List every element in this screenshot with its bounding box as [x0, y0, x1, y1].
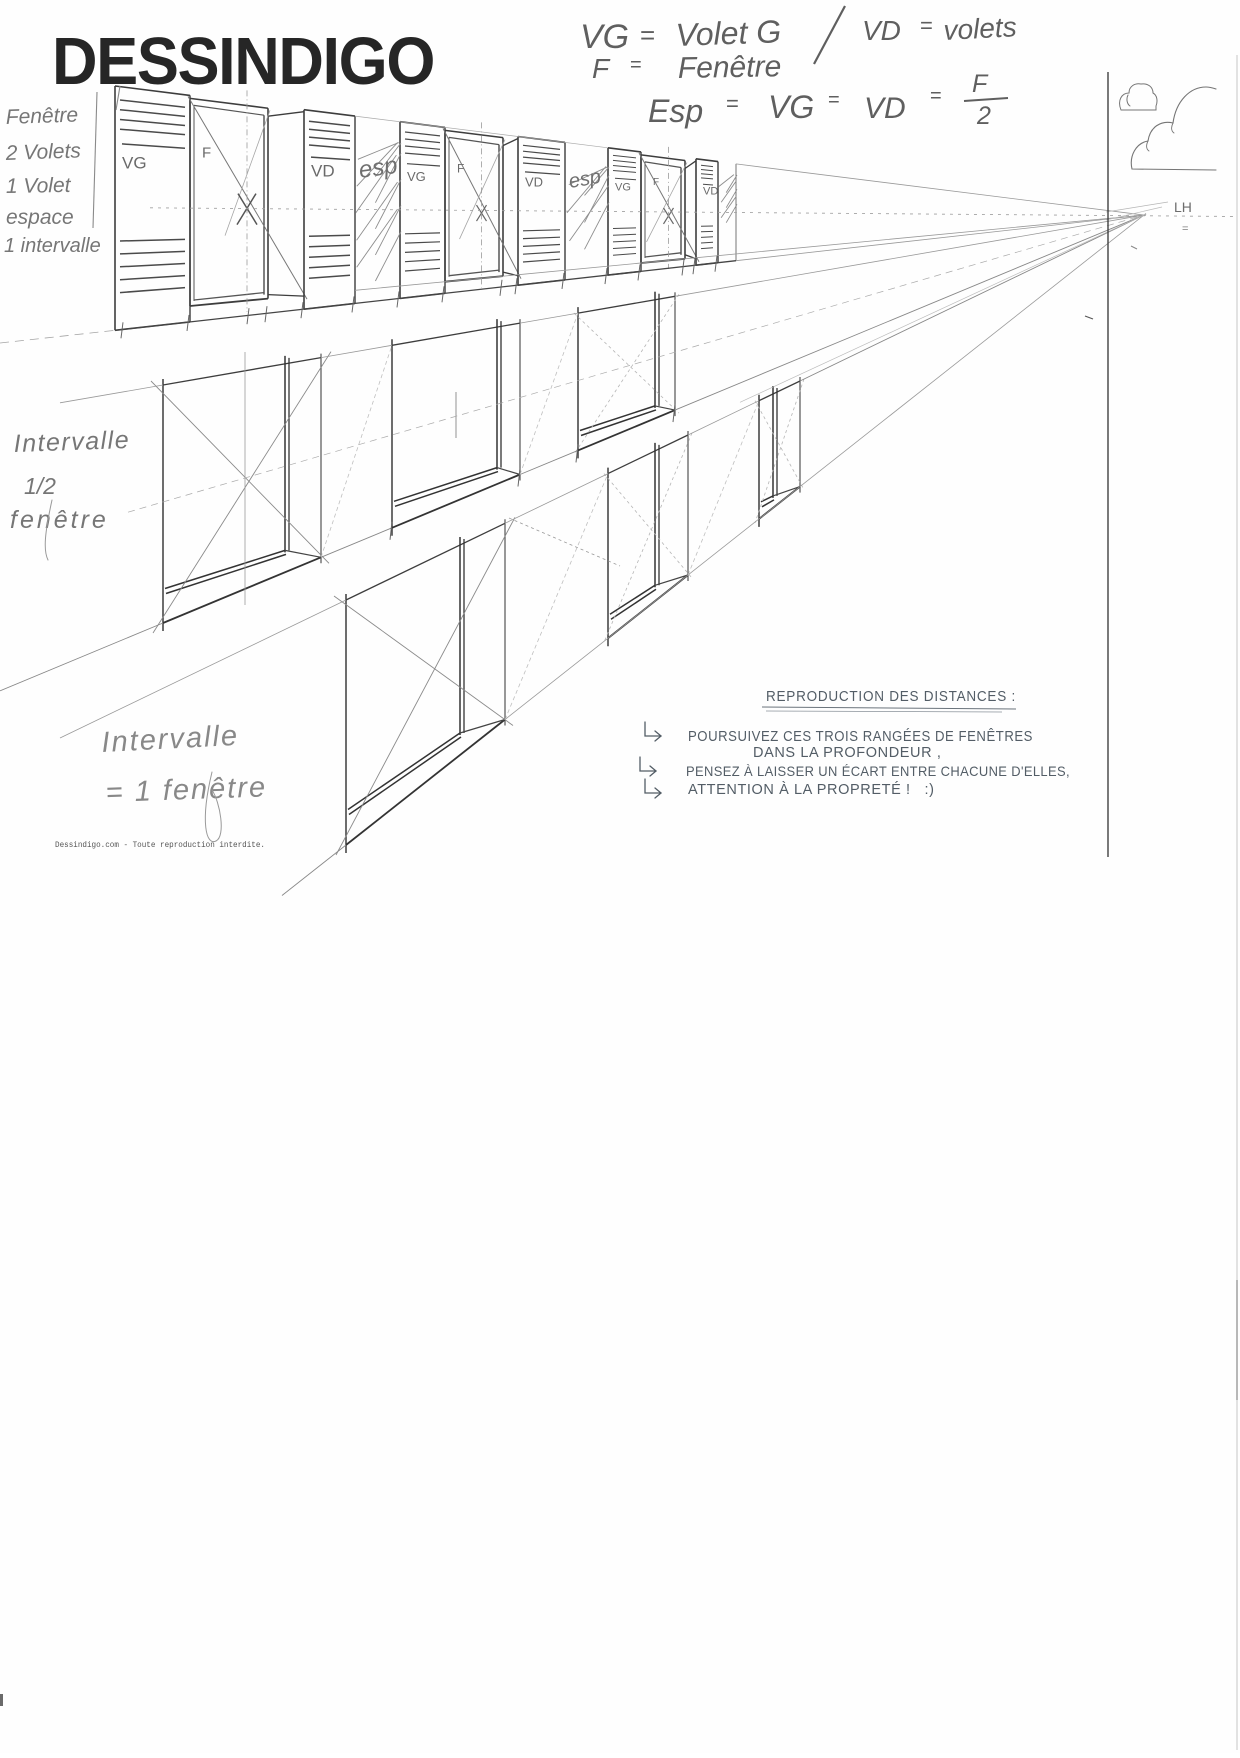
svg-text:esp: esp — [357, 152, 399, 184]
svg-text:Intervalle: Intervalle — [13, 426, 130, 458]
svg-text:=: = — [726, 91, 739, 116]
svg-text:VG: VG — [580, 18, 629, 56]
svg-text:ATTENTION À LA PROPRETÉ ! :): ATTENTION À LA PROPRETÉ ! :) — [688, 781, 935, 798]
svg-text:=: = — [630, 54, 642, 76]
svg-text:fenêtre: fenêtre — [10, 506, 109, 534]
svg-text:volets: volets — [943, 11, 1018, 46]
svg-text:1 intervalle: 1 intervalle — [4, 235, 101, 257]
svg-text:DESSINDIGO: DESSINDIGO — [52, 24, 434, 99]
svg-text:F: F — [457, 161, 464, 175]
svg-text:2 Volets: 2 Volets — [4, 139, 81, 165]
svg-text:DANS LA PROFONDEUR ,: DANS LA PROFONDEUR , — [753, 745, 941, 761]
svg-text:REPRODUCTION DES DISTANCES :: REPRODUCTION DES DISTANCES : — [766, 689, 1016, 705]
svg-text:=: = — [1182, 223, 1188, 235]
svg-text:VD: VD — [311, 162, 335, 181]
svg-text:=: = — [930, 85, 942, 107]
svg-text:VD: VD — [864, 92, 906, 125]
svg-text:F: F — [592, 53, 611, 84]
svg-text:VG: VG — [122, 153, 147, 172]
svg-text:LH: LH — [1174, 199, 1192, 215]
svg-text:1/2: 1/2 — [24, 473, 56, 499]
svg-text:VG: VG — [407, 169, 426, 184]
svg-text:VD: VD — [862, 15, 901, 46]
svg-text:1 Volet: 1 Volet — [6, 174, 72, 198]
svg-text:Esp: Esp — [648, 93, 703, 129]
svg-text:VG: VG — [768, 89, 814, 125]
svg-text:POURSUIVEZ CES TROIS RANGÉES D: POURSUIVEZ CES TROIS RANGÉES DE FENÊTRES — [688, 728, 1033, 745]
svg-text:PENSEZ À LAISSER UN ÉCART ENTR: PENSEZ À LAISSER UN ÉCART ENTRE CHACUNE … — [686, 763, 1070, 779]
svg-text:Dessindigo.com - Toute reprodu: Dessindigo.com - Toute reproduction inte… — [55, 840, 265, 850]
svg-text:F: F — [653, 177, 659, 188]
svg-text:=: = — [920, 13, 933, 38]
svg-text:Volet G: Volet G — [675, 13, 782, 53]
svg-text:F: F — [202, 144, 211, 161]
svg-text:=: = — [828, 89, 840, 111]
svg-text:=: = — [640, 20, 655, 50]
svg-text:espace: espace — [6, 206, 74, 229]
svg-text:2: 2 — [976, 102, 991, 130]
svg-text:VD: VD — [703, 185, 718, 197]
svg-text:VG: VG — [615, 182, 631, 194]
svg-text:Fenêtre: Fenêtre — [5, 103, 78, 129]
svg-text:VD: VD — [525, 175, 543, 190]
svg-text:Fenêtre: Fenêtre — [678, 50, 782, 85]
svg-text:= 1 fenêtre: = 1 fenêtre — [105, 771, 267, 809]
svg-text:F: F — [972, 70, 989, 98]
